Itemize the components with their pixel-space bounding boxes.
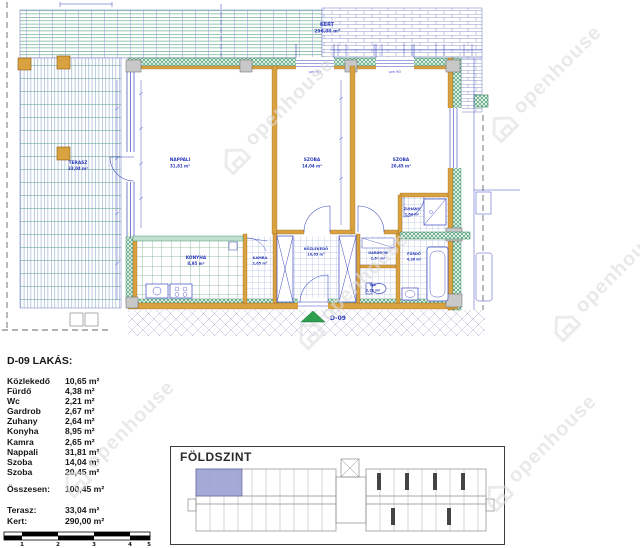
room-label-terasz: TERASZ33,04 m² <box>68 160 88 171</box>
svg-text:8,95 m²: 8,95 m² <box>187 261 204 266</box>
table-row: Konyha8,95 m² <box>7 426 207 436</box>
svg-text:GARDROB: GARDROB <box>368 251 388 255</box>
svg-text:1: 1 <box>20 542 24 548</box>
window-right <box>447 108 462 168</box>
svg-text:10,65 m²: 10,65 m² <box>307 253 325 257</box>
table-row: Wc2,21 m² <box>7 396 207 406</box>
dim-label: pm 90 <box>309 70 321 74</box>
scale-bar: 1 2 3 4 5 <box>2 528 162 548</box>
svg-text:2,67 m²: 2,67 m² <box>371 257 386 261</box>
room-label-kamra: KAMRA 2,65 m² <box>252 256 268 266</box>
garden-wall-block <box>474 95 488 107</box>
svg-text:KERT: KERT <box>320 22 335 28</box>
svg-text:KÖZLEKEDŐ: KÖZLEKEDŐ <box>304 246 328 251</box>
dim-label: pm 90 <box>389 70 401 74</box>
bathtub <box>427 247 448 301</box>
svg-text:ZUHANY: ZUHANY <box>404 207 421 211</box>
table-row: Közlekedő10,65 m² <box>7 376 207 386</box>
screenshot-root: pm 90 pm 90 KERT290,00 m² TERASZ33,04 m²… <box>0 0 640 548</box>
room-label-szoba1: SZOBA14,04 m² <box>302 157 322 168</box>
svg-text:5: 5 <box>147 542 151 548</box>
kitchen-counter-partition <box>133 236 243 241</box>
svg-text:4: 4 <box>128 542 132 548</box>
apartment-title: D-09 LAKÁS: <box>7 355 207 367</box>
svg-text:31,81 m²: 31,81 m² <box>170 163 190 168</box>
svg-text:2: 2 <box>56 542 60 548</box>
svg-text:20,45 m²: 20,45 m² <box>391 163 411 168</box>
washbasin <box>402 288 418 300</box>
room-label-konyha: KONYHA8,95 m² <box>186 255 207 266</box>
svg-text:KAMRA: KAMRA <box>253 256 268 260</box>
svg-text:2,64 m²: 2,64 m² <box>405 213 420 217</box>
room-label-szoba2: SZOBA20,45 m² <box>391 157 411 168</box>
floor-overview-box: FÖLDSZINT <box>170 446 505 545</box>
table-row: Fürdő4,38 m² <box>7 386 207 396</box>
wardrobe <box>362 238 394 248</box>
shower-tray <box>424 199 446 225</box>
walkway-area <box>128 310 485 336</box>
interior-wall-green <box>400 232 470 239</box>
svg-text:3: 3 <box>92 542 96 548</box>
terrace-area <box>20 58 121 308</box>
table-row: Zuhany2,64 m² <box>7 416 207 426</box>
svg-text:2,65 m²: 2,65 m² <box>252 262 268 266</box>
svg-text:33,04 m²: 33,04 m² <box>68 166 88 171</box>
svg-text:14,04 m²: 14,04 m² <box>302 163 322 168</box>
svg-text:NAPPALI: NAPPALI <box>170 157 191 163</box>
svg-text:4,38 m²: 4,38 m² <box>407 258 422 262</box>
svg-text:2,21 m²: 2,21 m² <box>366 289 381 293</box>
pergola-area <box>20 10 322 58</box>
highlighted-unit <box>196 469 242 496</box>
dimension-line-top <box>60 2 112 7</box>
room-label-gardrob: GARDROB 2,67 m² <box>368 251 388 261</box>
overview-dark-units <box>377 473 465 525</box>
house-logo-icon <box>544 305 584 345</box>
openhouse-watermark: openhouse <box>544 219 640 345</box>
svg-text:SZOBA: SZOBA <box>393 157 410 163</box>
svg-text:SZOBA: SZOBA <box>304 157 321 163</box>
table-row: Gardrob2,67 m² <box>7 406 207 416</box>
room-label-nappali: NAPPALI31,81 m² <box>170 157 191 168</box>
kitchen-symbol <box>229 242 237 250</box>
svg-text:290,00 m²: 290,00 m² <box>314 28 340 34</box>
entry-steps <box>70 313 98 326</box>
entrance-code: D-09 <box>330 315 346 322</box>
svg-text:FÜRDŐ: FÜRDŐ <box>407 251 421 256</box>
svg-text:WC: WC <box>370 283 377 287</box>
room-label-zuhany: ZUHANY 2,64 m² <box>404 207 421 217</box>
floor-plan-drawing: pm 90 pm 90 KERT290,00 m² TERASZ33,04 m²… <box>0 0 525 352</box>
overview-title: FÖLDSZINT <box>180 450 252 464</box>
